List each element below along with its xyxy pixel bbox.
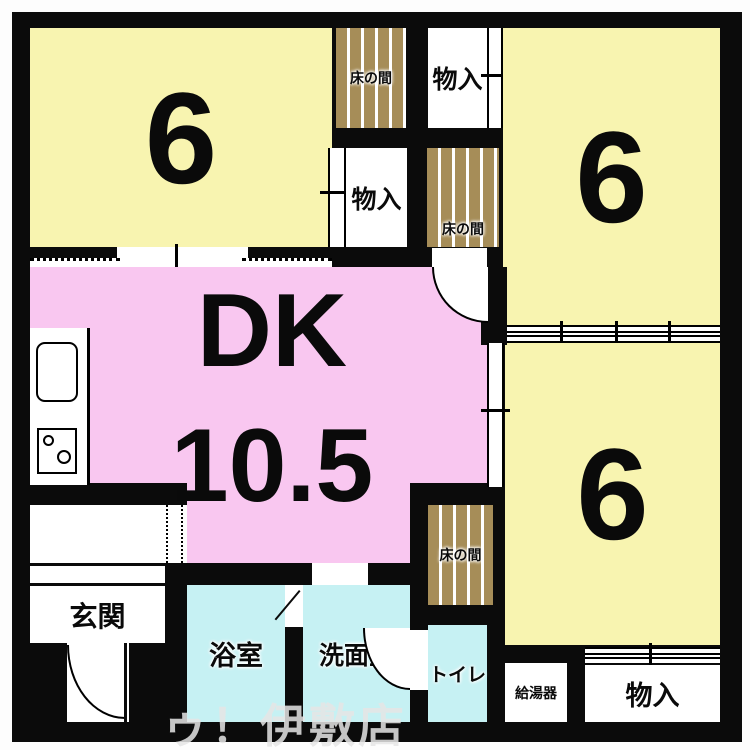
entrance-label: 玄関 xyxy=(69,595,125,635)
storage-label: 物入 xyxy=(626,674,680,713)
storage-top: 物入 xyxy=(428,28,487,128)
entrance-genkan: 玄関 xyxy=(30,586,165,643)
washroom-door-opening xyxy=(312,563,368,585)
storage-sliding-track xyxy=(585,647,720,663)
tokonoma-label: 床の間 xyxy=(442,219,484,239)
fusuma-partition-track xyxy=(505,325,720,343)
dk-door-opening xyxy=(432,248,487,267)
entrance-step xyxy=(30,566,165,583)
storage-mid: 物入 xyxy=(346,148,407,247)
room-size-label: 6 xyxy=(576,429,648,559)
entrance-door-leaf xyxy=(124,643,127,722)
entrance-door-alcove xyxy=(67,643,129,722)
toilet-label: トイレ xyxy=(429,660,486,687)
water-heater-label: 給湯器 xyxy=(515,683,557,703)
room-size-label: 6 xyxy=(145,73,217,203)
room-tatami-bottom-right: 6 xyxy=(505,343,720,645)
closet-sliding-track xyxy=(328,148,346,247)
room-tatami-top-right: 6 xyxy=(503,28,720,325)
dk-label-line2: 10.5 xyxy=(117,399,427,534)
door-tick-mark xyxy=(649,643,652,667)
kitchen-sink xyxy=(36,342,78,402)
tokonoma-top: 床の間 xyxy=(336,28,406,128)
room-size-label: 6 xyxy=(575,112,647,242)
dk-size-label: DK 10.5 xyxy=(117,264,427,534)
stove-burner-icon xyxy=(43,435,54,446)
door-tick-mark xyxy=(481,409,510,412)
washroom-toilet-opening xyxy=(410,630,428,690)
water-heater: 給湯器 xyxy=(505,663,567,722)
wall-stub xyxy=(487,267,507,325)
tokonoma-mid: 床の間 xyxy=(427,148,499,247)
dk-label-line1: DK xyxy=(117,264,427,399)
closet-sliding-track xyxy=(487,28,503,128)
floorplan-outer-wall: 6 床の間 物入 物入 床の間 6 6 DK 10.5 xyxy=(12,12,742,742)
storage-label: 物入 xyxy=(432,60,482,96)
storage-bottom: 物入 xyxy=(585,665,720,722)
room-tatami-top-left: 6 xyxy=(30,28,332,247)
tokonoma-bottom: 床の間 xyxy=(428,505,493,605)
door-tick-mark xyxy=(320,191,348,194)
stove-burner-icon xyxy=(57,450,71,464)
kitchen-stove xyxy=(37,428,77,474)
storage-label: 物入 xyxy=(351,180,401,216)
shop-watermark: ゥ！伊敷店 xyxy=(162,690,407,750)
dk-room-sliding-track xyxy=(487,343,504,487)
room-toilet: トイレ xyxy=(428,625,487,722)
wall-segment xyxy=(30,247,117,258)
dotted-threshold xyxy=(242,258,332,261)
bathroom-label: 浴室 xyxy=(209,634,263,673)
tokonoma-label: 床の間 xyxy=(350,68,392,88)
wall-segment xyxy=(248,247,332,258)
entrance-door-swing-arc xyxy=(67,645,125,719)
tokonoma-label: 床の間 xyxy=(440,545,482,565)
wall-junction xyxy=(481,320,507,345)
dotted-threshold xyxy=(30,258,120,261)
floorplan-image: 6 床の間 物入 物入 床の間 6 6 DK 10.5 xyxy=(0,0,750,750)
kitchen-counter xyxy=(30,328,90,485)
